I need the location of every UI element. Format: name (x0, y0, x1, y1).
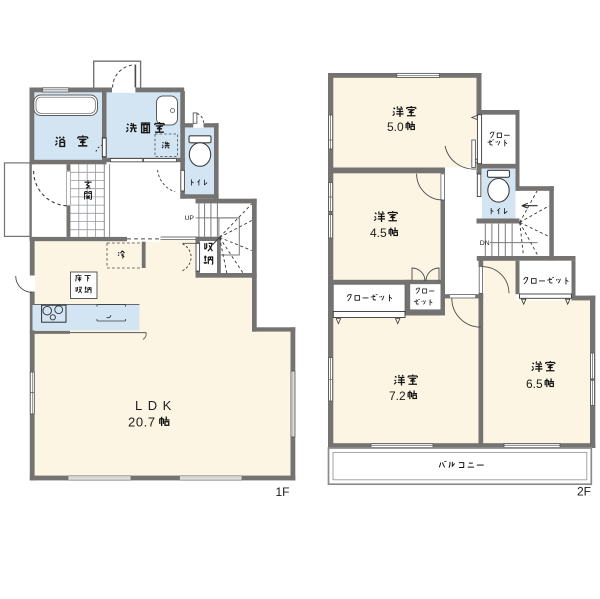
svg-text:LDK: LDK (135, 398, 177, 413)
svg-text:6.5: 6.5 (526, 377, 543, 391)
svg-text:1F: 1F (276, 485, 290, 499)
svg-text:20.7: 20.7 (128, 415, 156, 430)
svg-text:DN: DN (480, 240, 490, 247)
svg-text:4.5: 4.5 (370, 226, 387, 240)
svg-text:UP: UP (185, 215, 195, 222)
svg-text:2F: 2F (577, 485, 591, 499)
svg-text:5.0: 5.0 (387, 120, 404, 134)
svg-text:7.2: 7.2 (389, 389, 406, 403)
